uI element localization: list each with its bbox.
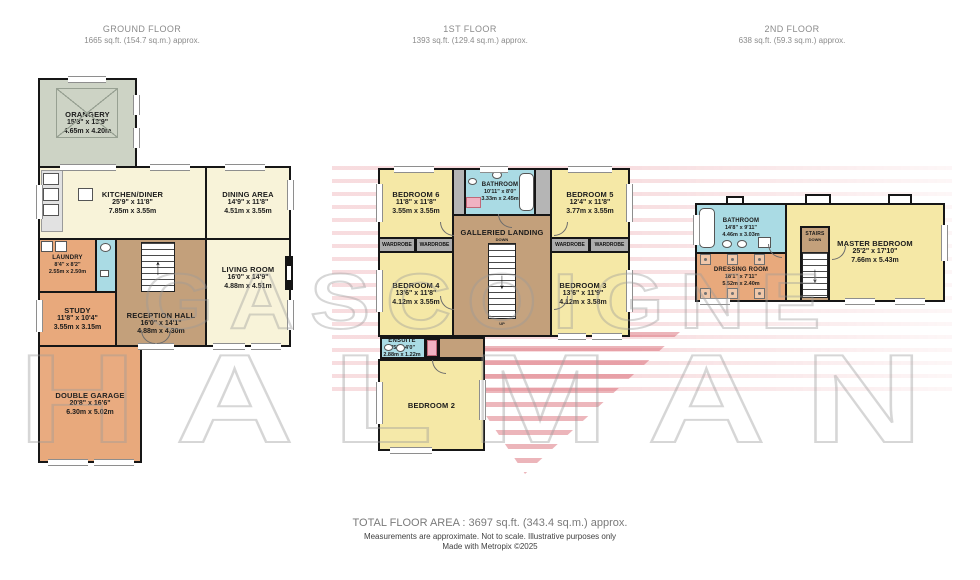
stairs-down-label: DOWN bbox=[809, 237, 822, 243]
room-dims-m: 4.51m x 3.55m bbox=[224, 208, 271, 217]
oven-icon bbox=[43, 188, 59, 201]
window bbox=[626, 184, 633, 222]
sink-icon bbox=[722, 240, 732, 248]
room-dims-m: 3.77m x 3.55m bbox=[566, 208, 613, 217]
window bbox=[36, 185, 43, 219]
total-floor-area: TOTAL FLOOR AREA : 3697 sq.ft. (343.4 sq… bbox=[0, 517, 980, 529]
cupboard bbox=[534, 168, 552, 216]
watermark-line-2: HALMAN bbox=[0, 336, 980, 462]
room-label: GALLERIED LANDING bbox=[461, 228, 544, 237]
french-door bbox=[133, 95, 140, 115]
washer-icon bbox=[41, 241, 53, 252]
wardrobe-label: WARDROBE bbox=[420, 242, 450, 248]
room-label: BATHROOM bbox=[723, 218, 759, 225]
room-dims-ft: 14'9" x 11'8" bbox=[228, 199, 269, 208]
room-dims-ft: 10'11" x 8'0" bbox=[484, 189, 516, 196]
room-dims-ft: 12'4" x 11'8" bbox=[570, 199, 611, 208]
radiator-icon bbox=[466, 197, 481, 208]
window bbox=[568, 166, 612, 173]
disclaimer-text: Measurements are approximate. Not to sca… bbox=[0, 532, 980, 541]
wardrobe: WARDROBE bbox=[550, 237, 590, 253]
room-dims-m: 7.85m x 3.55m bbox=[109, 208, 156, 217]
window bbox=[68, 76, 106, 83]
room-label: DINING AREA bbox=[222, 190, 274, 199]
room-label: BEDROOM 5 bbox=[566, 190, 613, 199]
sink-icon bbox=[43, 173, 59, 185]
french-door bbox=[133, 128, 140, 148]
roof-lantern-icon bbox=[56, 88, 118, 138]
room-label: MASTER BEDROOM bbox=[837, 239, 913, 248]
credit-text: Made with Metropix ©2025 bbox=[0, 542, 980, 551]
room-dims-ft: 25'9" x 11'8" bbox=[112, 199, 153, 208]
window bbox=[394, 166, 434, 173]
first-floor-area: 1393 sq.ft. (129.4 sq.m.) approx. bbox=[370, 36, 570, 45]
room-label: BEDROOM 6 bbox=[392, 190, 439, 199]
bathtub-icon bbox=[519, 173, 534, 211]
wardrobe-label: WARDROBE bbox=[595, 242, 625, 248]
cupboard bbox=[452, 168, 466, 216]
window bbox=[941, 225, 948, 261]
room-dining-area: DINING AREA 14'9" x 11'8" 4.51m x 3.55m bbox=[205, 166, 291, 240]
first-floor-header: 1ST FLOOR 1393 sq.ft. (129.4 sq.m.) appr… bbox=[370, 24, 570, 45]
room-dims-m: 3.55m x 3.55m bbox=[392, 208, 439, 217]
window bbox=[376, 184, 383, 222]
wardrobe-label: WARDROBE bbox=[555, 242, 585, 248]
room-dims-ft: 25'2" x 17'10" bbox=[852, 248, 897, 257]
wardrobe-label: WARDROBE bbox=[382, 242, 412, 248]
sink-icon bbox=[468, 178, 477, 185]
room-dims-ft: 14'8" x 9'11" bbox=[725, 225, 757, 232]
toilet-icon bbox=[100, 243, 111, 252]
wardrobe: WARDROBE bbox=[378, 237, 416, 253]
second-floor-area: 638 sq.ft. (59.3 sq.m.) approx. bbox=[692, 36, 892, 45]
stairs-down-label: DOWN bbox=[496, 237, 509, 243]
second-floor-title: 2ND FLOOR bbox=[692, 24, 892, 34]
ground-floor-title: GROUND FLOOR bbox=[42, 24, 242, 34]
hob-icon bbox=[43, 204, 59, 216]
ground-floor-header: GROUND FLOOR 1665 sq.ft. (154.7 sq.m.) a… bbox=[42, 24, 242, 45]
room-label: KITCHEN/DINER bbox=[102, 190, 163, 199]
window bbox=[150, 164, 190, 171]
dryer-icon bbox=[55, 241, 67, 252]
second-floor-header: 2ND FLOOR 638 sq.ft. (59.3 sq.m.) approx… bbox=[692, 24, 892, 45]
door-opening bbox=[60, 164, 116, 171]
toilet-icon bbox=[737, 240, 747, 248]
window bbox=[693, 215, 700, 245]
ground-floor-area: 1665 sq.ft. (154.7 sq.m.) approx. bbox=[42, 36, 242, 45]
bathtub-icon bbox=[699, 208, 715, 248]
room-dims-m: 4.46m x 3.03m bbox=[722, 232, 759, 239]
room-label: BATHROOM bbox=[482, 182, 518, 189]
window bbox=[225, 164, 265, 171]
wardrobe: WARDROBE bbox=[415, 237, 454, 253]
room-dims-ft: 11'8" x 11'8" bbox=[396, 199, 436, 208]
room-kitchen-diner: KITCHEN/DINER 25'9" x 11'8" 7.85m x 3.55… bbox=[38, 166, 207, 240]
window bbox=[480, 166, 508, 173]
wardrobe: WARDROBE bbox=[589, 237, 630, 253]
window bbox=[287, 180, 294, 210]
room-dims-m: 3.33m x 2.45m bbox=[481, 196, 518, 203]
first-floor-title: 1ST FLOOR bbox=[370, 24, 570, 34]
kitchen-island-icon bbox=[78, 188, 93, 201]
